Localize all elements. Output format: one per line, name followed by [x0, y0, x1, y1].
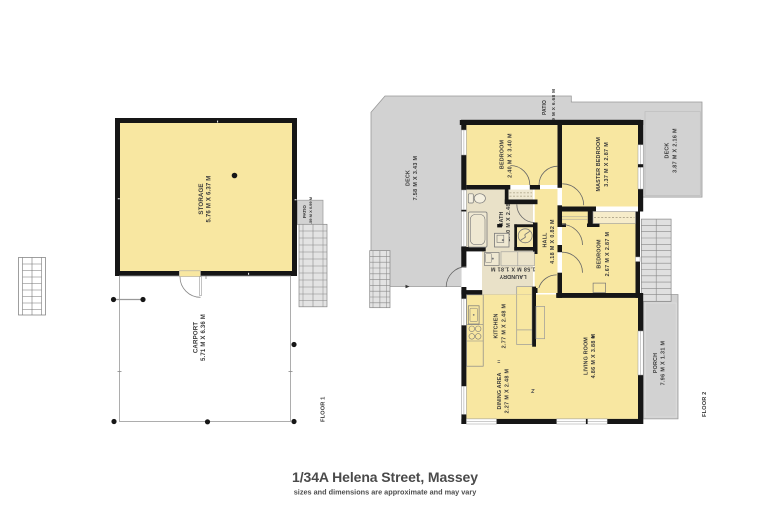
svg-text:2.40 M X 3.40 M: 2.40 M X 3.40 M: [507, 133, 513, 178]
svg-text:MASTER BEDROOM: MASTER BEDROOM: [596, 137, 602, 192]
svg-text:KITCHEN: KITCHEN: [493, 313, 499, 338]
svg-text:DINING AREA: DINING AREA: [497, 372, 503, 409]
svg-text:DECK: DECK: [664, 143, 670, 159]
svg-text:7.96 M X 1.31 M: 7.96 M X 1.31 M: [660, 340, 666, 385]
svg-text:1.58 M X 1.81 M: 1.58 M X 1.81 M: [490, 265, 535, 271]
svg-text:5.71 M X 6.36 M: 5.71 M X 6.36 M: [201, 314, 207, 361]
svg-text:3.37 M X 2.87 M: 3.37 M X 2.87 M: [604, 142, 610, 187]
svg-text:2.67 M X 2.87 M: 2.67 M X 2.87 M: [605, 231, 611, 276]
svg-text:FLOOR 1: FLOOR 1: [320, 397, 326, 422]
svg-text:STORAGE: STORAGE: [198, 183, 205, 214]
svg-text:0.59 M X 0.99 M: 0.59 M X 0.99 M: [308, 196, 313, 226]
svg-text:2.77 M X 2.48 M: 2.77 M X 2.48 M: [502, 303, 508, 348]
svg-text:BEDROOM: BEDROOM: [500, 140, 506, 170]
svg-text:HALL: HALL: [543, 232, 549, 248]
svg-text:2.27 M X 2.48 M: 2.27 M X 2.48 M: [505, 368, 511, 413]
svg-text:DECK: DECK: [405, 170, 411, 186]
svg-text:5.76 M X 6.37 M: 5.76 M X 6.37 M: [206, 175, 212, 222]
svg-text:PATIO: PATIO: [302, 205, 307, 219]
svg-text:3.87 M X 2.16 M: 3.87 M X 2.16 M: [672, 128, 678, 173]
svg-text:BEDROOM: BEDROOM: [596, 239, 602, 269]
svg-text:4.86 M X 3.88 M: 4.86 M X 3.88 M: [591, 333, 597, 378]
svg-text:PORCH: PORCH: [653, 353, 659, 373]
svg-text:7.58 M X 3.43 M: 7.58 M X 3.43 M: [413, 155, 419, 200]
svg-text:FLOOR 2: FLOOR 2: [702, 392, 708, 417]
svg-text:LIVING ROOM: LIVING ROOM: [583, 337, 589, 375]
svg-text:PATIO: PATIO: [542, 100, 548, 115]
svg-text:4.18 M X 0.82 M: 4.18 M X 0.82 M: [550, 219, 556, 264]
svg-text:CARPORT: CARPORT: [192, 322, 199, 353]
svg-text:1/34A Helena Street, Massey: 1/34A Helena Street, Massey: [292, 469, 478, 485]
svg-text:sizes and dimensions are appro: sizes and dimensions are approximate and…: [294, 488, 477, 497]
svg-text:LAUNDRY: LAUNDRY: [499, 273, 526, 279]
